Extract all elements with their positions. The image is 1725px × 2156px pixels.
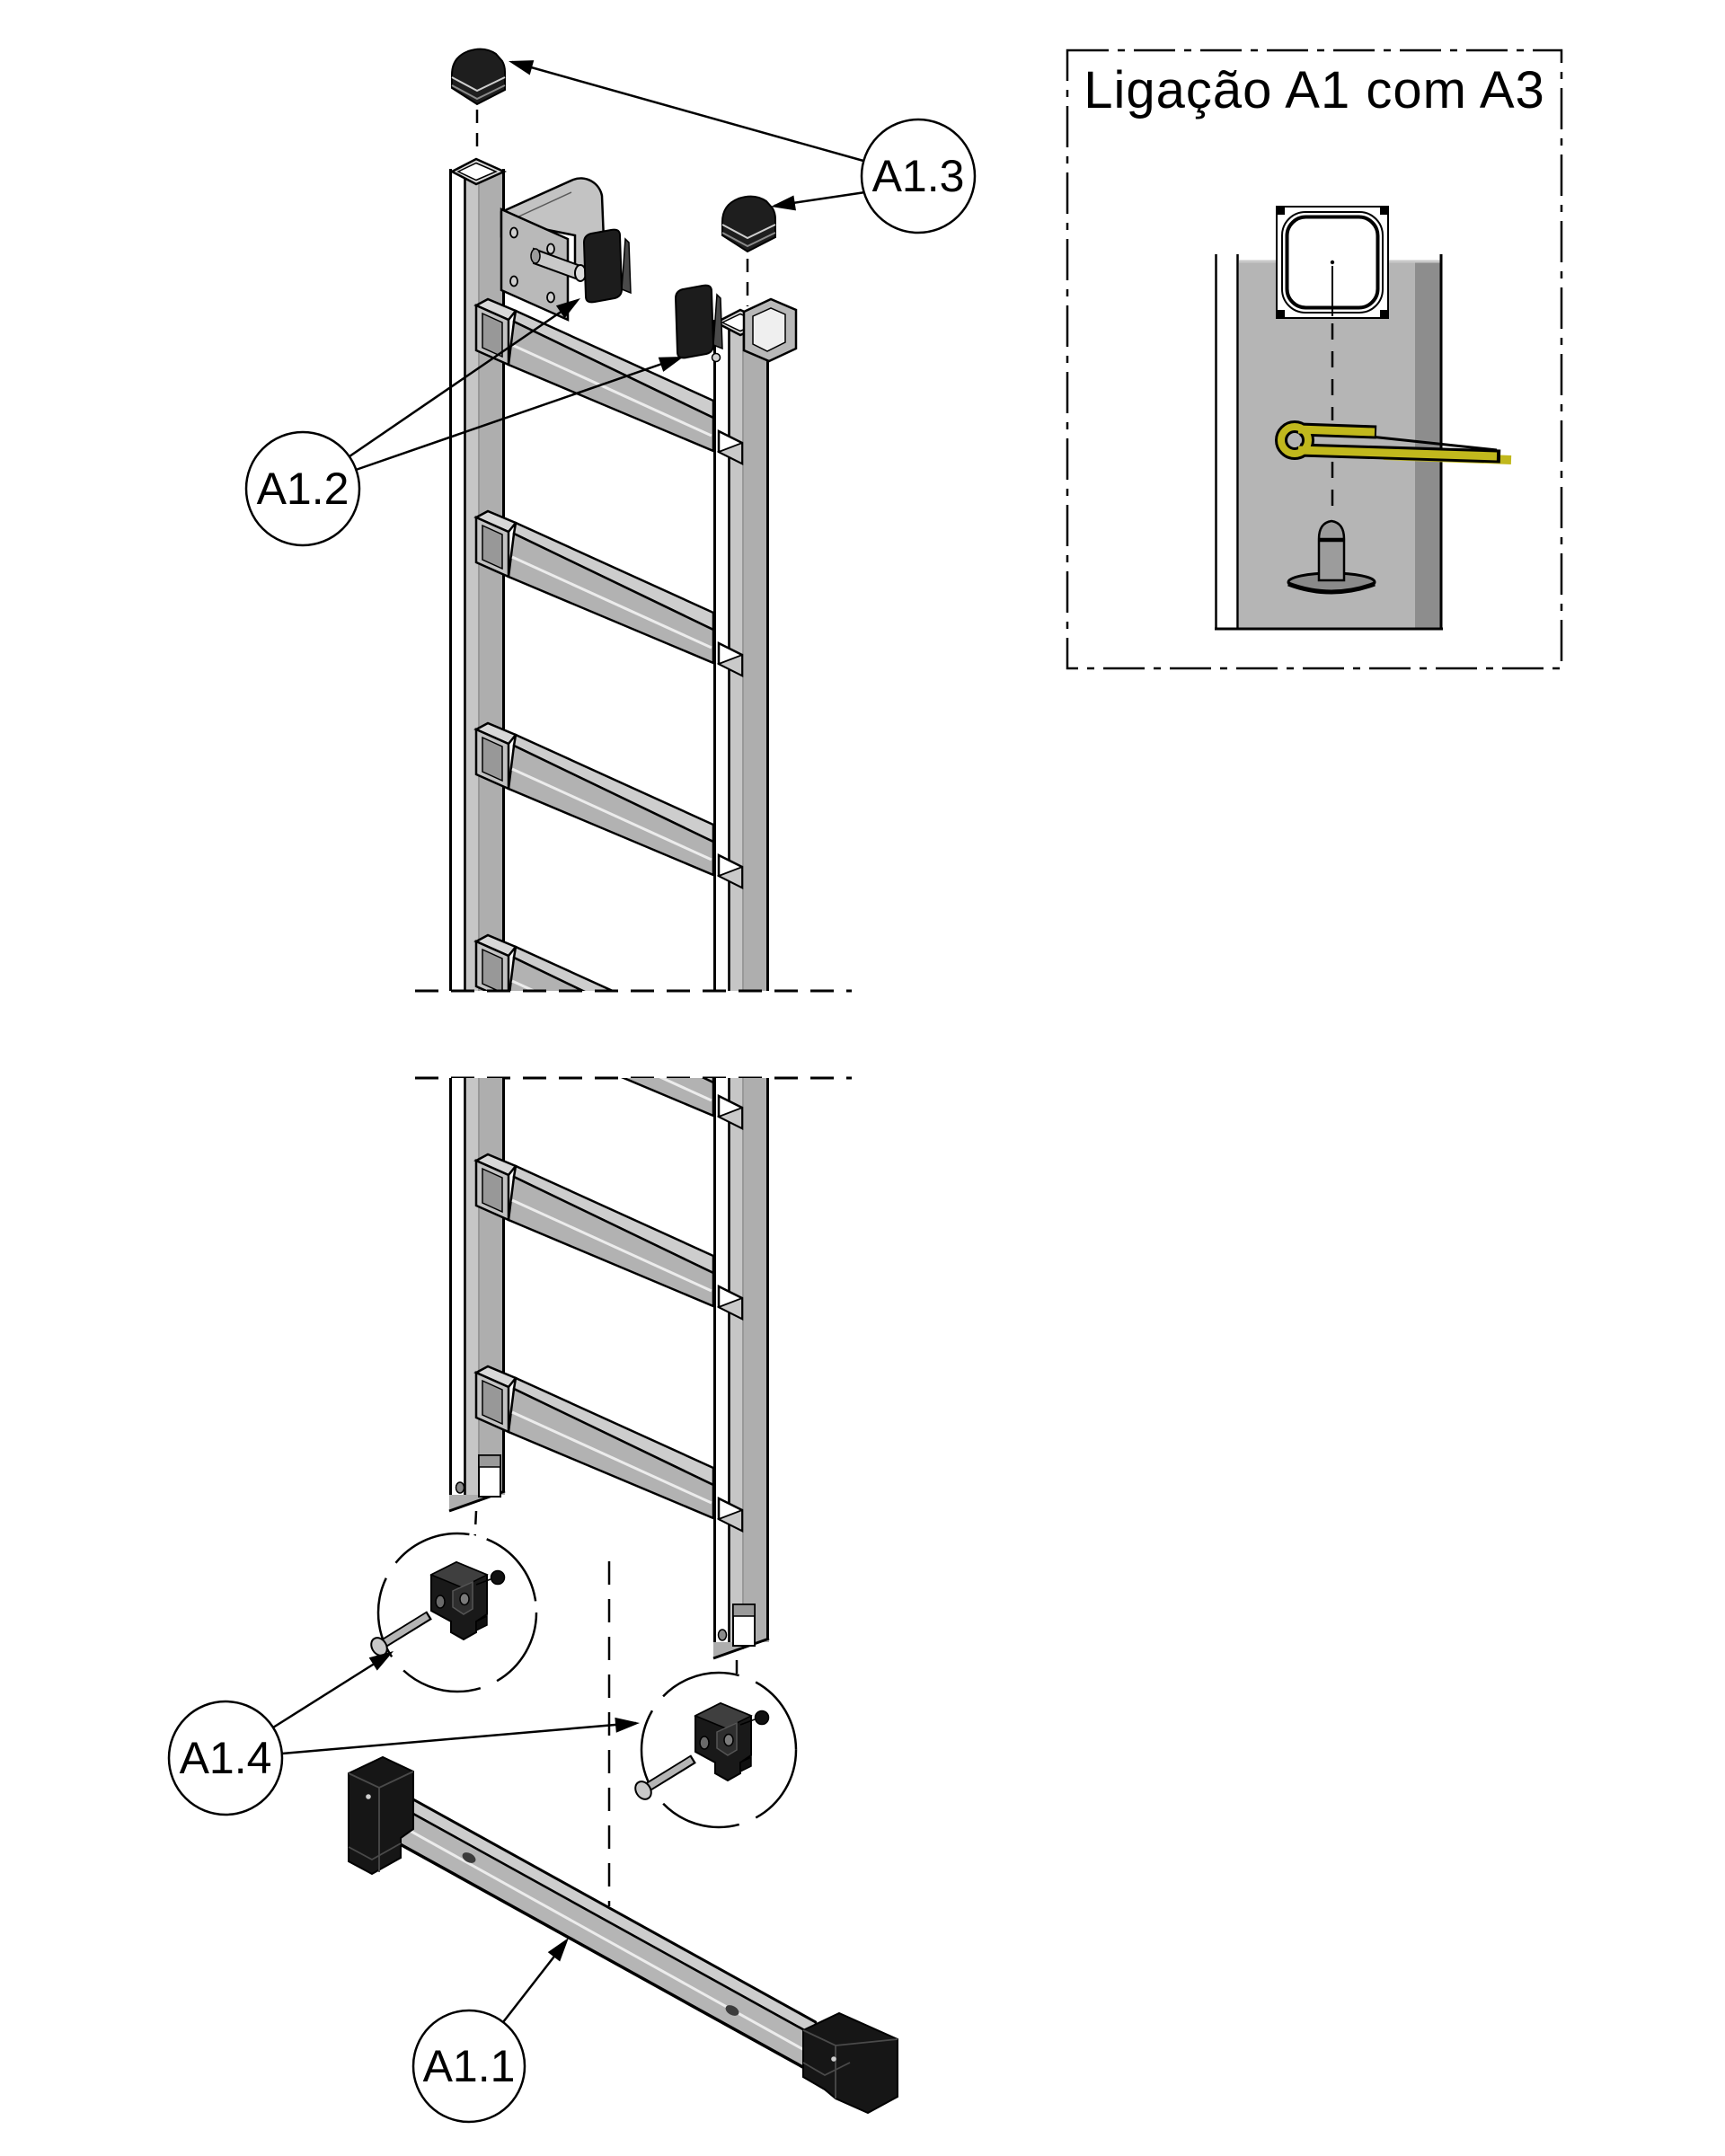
rung [476, 723, 713, 875]
detail-box-title: Ligação A1 com A3 [1084, 61, 1545, 119]
callout-label-a1-1: A1.1 [423, 2041, 516, 2091]
bolt-hole [510, 228, 517, 238]
detail-box: Ligação A1 com A3 [1067, 50, 1561, 668]
leader-arrowhead [615, 1716, 640, 1733]
detail-circle-clamp-right [632, 1673, 796, 1827]
bolt-hole [547, 293, 554, 303]
connector-sleeve [744, 299, 796, 361]
end-cap-left [452, 49, 505, 104]
clamp-nut [491, 1571, 505, 1585]
rail-end-hole [456, 1482, 464, 1493]
bar-end-cap-left [349, 1757, 413, 1874]
bolt-hole [510, 277, 517, 287]
callout-label-a1-2: A1.2 [257, 464, 349, 514]
rung-plug [584, 230, 631, 303]
callout-a1-1: A1.1 [413, 1933, 575, 2122]
leader-arrowhead [507, 54, 535, 75]
right-rail-lower [713, 1078, 769, 1658]
rung [476, 1366, 713, 1518]
rung [476, 511, 713, 663]
assembly-instruction-page: A1.3 A1.2 A1.4 [0, 0, 1725, 2156]
bar-end-cap-right [803, 2013, 898, 2113]
detail-circle-clamp-left [368, 1533, 536, 1692]
assembly-diagram: A1.3 A1.2 A1.4 [0, 0, 1725, 2156]
bolt-hole [547, 244, 554, 254]
left-rail-upper [449, 159, 505, 991]
clamp-nut [756, 1711, 769, 1725]
ladder-upper-section [449, 159, 796, 1087]
left-rail-lower [449, 1078, 505, 1511]
callout-label-a1-4: A1.4 [180, 1733, 272, 1783]
end-cap-right [722, 197, 775, 252]
rung [476, 1154, 713, 1306]
callout-label-a1-3: A1.3 [872, 151, 965, 201]
rail-rivet-dot [712, 354, 721, 362]
rung [476, 935, 713, 1087]
rail-end-hole [719, 1630, 727, 1640]
